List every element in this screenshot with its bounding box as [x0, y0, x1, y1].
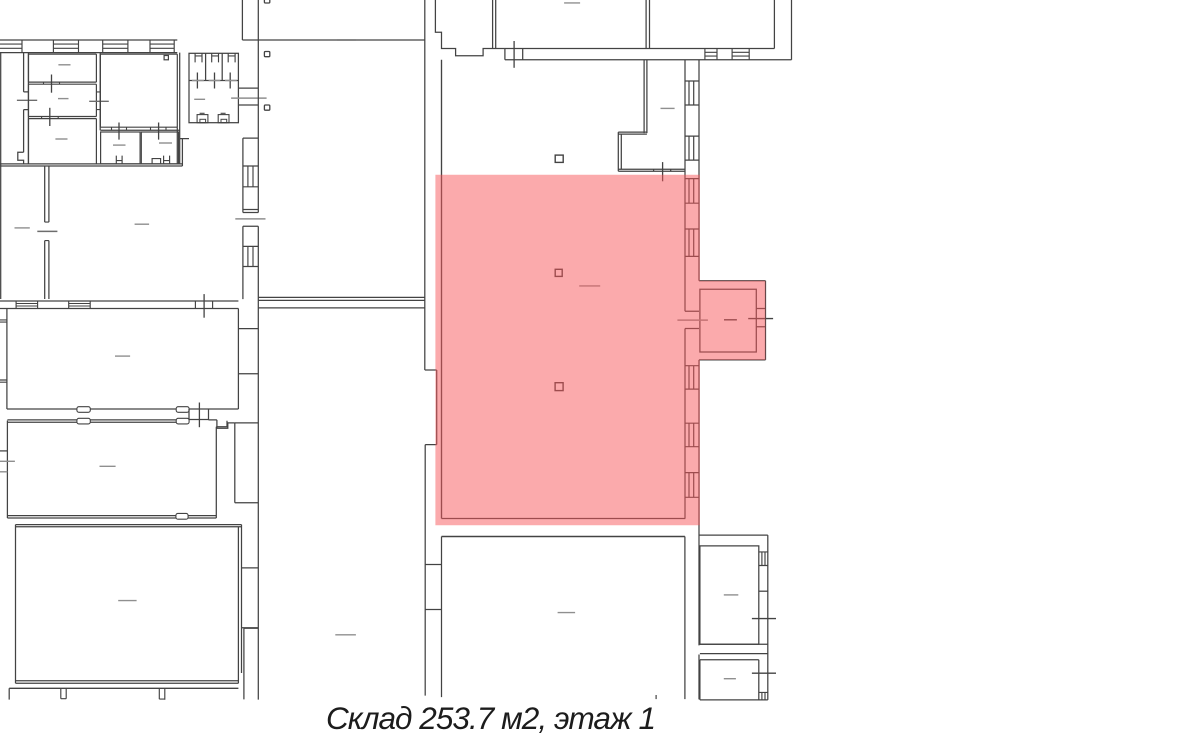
svg-text:Склад 253.7 м2, этаж 1: Склад 253.7 м2, этаж 1	[326, 700, 656, 736]
